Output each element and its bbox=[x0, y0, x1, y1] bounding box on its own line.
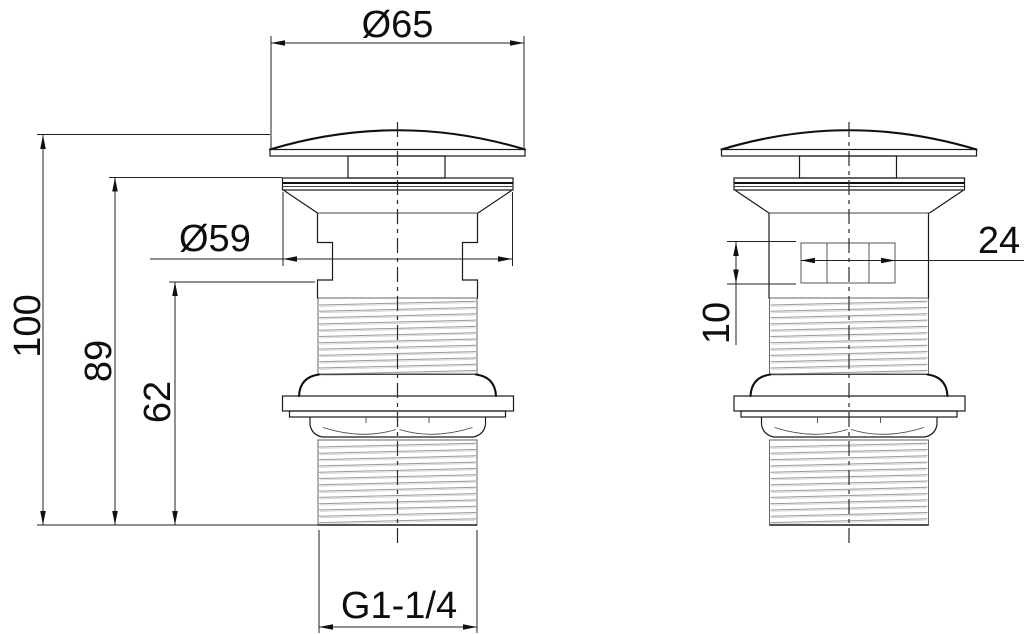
arrow-up-icon bbox=[172, 282, 178, 296]
arrow-down-icon bbox=[733, 270, 739, 284]
dim-thread-top-height-label: 62 bbox=[137, 381, 179, 423]
arrow-up-icon bbox=[733, 242, 739, 256]
dim-thread-top-height: 62 bbox=[137, 282, 315, 525]
dim-overall-height-label: 100 bbox=[7, 294, 49, 357]
arrow-down-icon bbox=[112, 511, 118, 525]
overflow-slot bbox=[801, 243, 895, 283]
dim-overall-height: 100 bbox=[7, 135, 270, 526]
dim-flange-height-label: 89 bbox=[78, 340, 120, 382]
arrow-down-icon bbox=[40, 511, 46, 525]
seal-arc-right bbox=[476, 375, 496, 397]
dimension-annotations: Ø65 Ø59 100 89 bbox=[7, 4, 1024, 633]
cap-stem bbox=[348, 156, 445, 178]
arrow-right-icon bbox=[463, 624, 477, 630]
technical-drawing: Ø65 Ø59 100 89 bbox=[0, 0, 1028, 634]
arrow-up-icon bbox=[40, 135, 46, 149]
left-body-profile-right bbox=[463, 213, 478, 299]
taper-left bbox=[284, 191, 318, 214]
dim-thread-size: G1-1/4 bbox=[319, 530, 477, 633]
seal-arc-left bbox=[299, 375, 319, 397]
dim-thread-size-label: G1-1/4 bbox=[341, 585, 457, 627]
arrow-left-icon bbox=[319, 624, 333, 630]
arrow-left-icon bbox=[271, 40, 285, 46]
arrow-up-icon bbox=[112, 178, 118, 192]
taper-right bbox=[478, 191, 512, 214]
arrow-down-icon bbox=[172, 511, 178, 525]
dim-slot-height-label: 10 bbox=[696, 302, 738, 344]
arrow-left-icon bbox=[283, 256, 297, 262]
left-body-profile-left bbox=[318, 213, 333, 299]
dim-slot-width-label: 24 bbox=[978, 220, 1020, 262]
drawing-svg: Ø65 Ø59 100 89 bbox=[0, 0, 1028, 634]
arrow-right-icon bbox=[498, 256, 512, 262]
arrow-right-icon bbox=[881, 258, 895, 264]
dim-flange-diameter: Ø59 bbox=[150, 192, 513, 266]
arrow-left-icon bbox=[801, 258, 815, 264]
dim-flange-diameter-label: Ø59 bbox=[179, 218, 251, 260]
dim-cap-diameter-label: Ø65 bbox=[362, 4, 434, 46]
dim-slot-width: 24 bbox=[801, 220, 1024, 263]
arrow-right-icon bbox=[510, 40, 524, 46]
